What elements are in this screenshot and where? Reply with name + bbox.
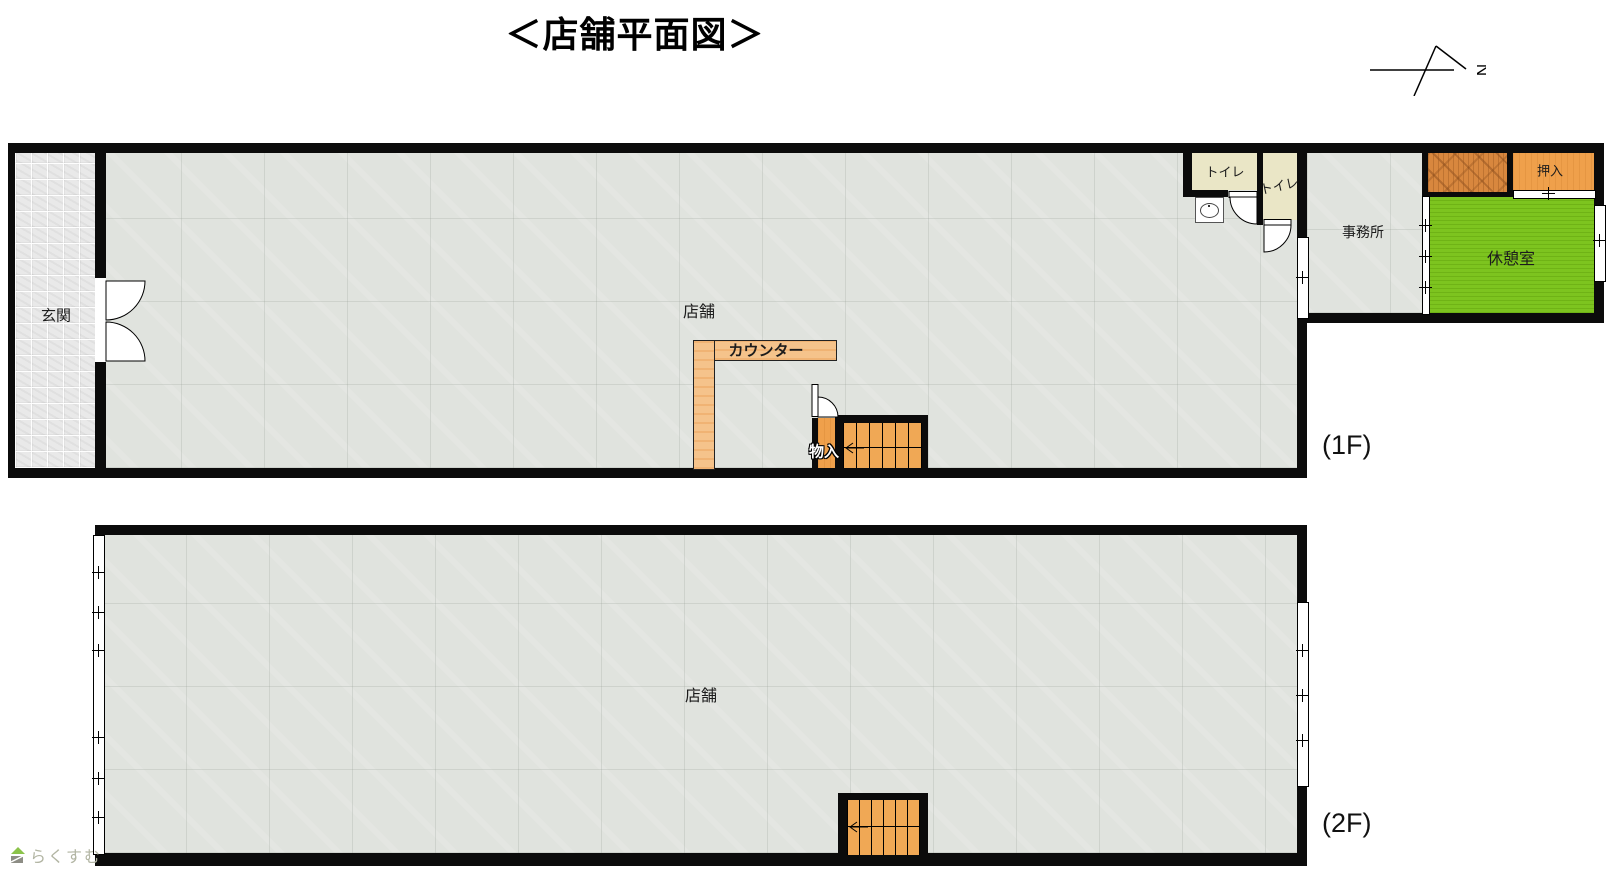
toilet-a-door [1228,191,1261,228]
logo-text: らくすむ [30,843,102,867]
storage-door [808,384,846,420]
counter-side [693,340,715,470]
store-floor-1f [15,153,1297,468]
wall [8,143,1604,153]
wall [1297,317,1307,478]
floor1-label: (1F) [1322,430,1372,461]
wall [95,853,1307,866]
wall [835,415,928,423]
wall [1428,192,1513,197]
slider-marker [1419,281,1432,294]
toilet-a-label: トイレ [1205,162,1244,181]
logo-house-icon [8,846,26,864]
window-marker [1296,734,1309,747]
wall [1422,143,1428,196]
wall [1507,143,1513,196]
toilet-b-door [1263,219,1295,256]
wall [95,362,106,468]
wall [1183,143,1192,196]
wall [8,468,1307,478]
wall [922,415,928,468]
wall [838,793,928,800]
wall [1297,153,1307,237]
store-label-1f: 店舗 [683,298,715,322]
counter-label: カウンター [728,340,803,361]
stair-direction-arrow [846,819,870,835]
floorplan-canvas: ＜店舗平面図＞ N [0,0,1611,869]
break-room-label: 休憩室 [1487,245,1535,269]
slider-marker [1542,187,1555,200]
wall [8,143,15,478]
window-marker [92,731,105,744]
sink-faucet-icon [1208,205,1210,207]
wall [95,525,1307,535]
site-logo: らくすむ [8,843,102,867]
entrance-label: 玄関 [41,305,71,326]
hand-sink-icon [1195,197,1224,223]
window-marker [92,811,105,824]
north-arrow-icon: N [1366,40,1486,96]
closet-label: 押入 [1537,161,1563,180]
staircase-2f: .canvas [data-name="staircase-2f"] .trea… [838,793,928,855]
wall [1297,535,1307,602]
store-label-2f: 店舗 [685,682,717,706]
window-marker [92,644,105,657]
wood-closet [1428,153,1507,192]
opening-marker [1296,271,1309,284]
slider-marker [1419,219,1432,232]
page-title: ＜店舗平面図＞ [475,6,795,58]
floor2-label: (2F) [1322,808,1372,839]
window-marker [1296,644,1309,657]
wall [1183,190,1228,197]
wall [920,793,928,855]
slider-marker [1419,250,1432,263]
window-marker [92,606,105,619]
left-window-wall [93,535,105,855]
wall [1297,313,1604,323]
wall [95,153,106,278]
wall [1297,785,1307,866]
north-mark: N [1473,64,1486,76]
window-marker [92,566,105,579]
entrance-double-door [95,276,149,366]
window-marker [1593,234,1606,247]
stair-direction-arrow [842,440,866,456]
window-marker [1296,689,1309,702]
office-label: 事務所 [1342,222,1384,242]
window-marker [92,772,105,785]
storage-label: 物入 [809,441,839,462]
